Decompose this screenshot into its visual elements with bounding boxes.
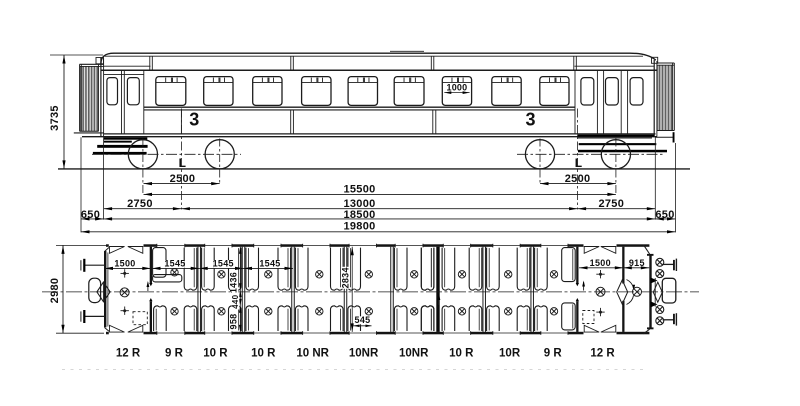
svg-text:10NR: 10NR [349,348,379,360]
svg-text:1545: 1545 [164,259,185,269]
svg-text:12 R: 12 R [590,348,615,360]
svg-text:1500: 1500 [590,258,611,268]
svg-text:L: L [575,156,582,170]
svg-text:1545: 1545 [213,259,234,269]
svg-text:15500: 15500 [343,184,375,196]
svg-text:3: 3 [525,110,535,130]
svg-text:3: 3 [189,110,199,130]
svg-text:10R: 10R [499,348,521,360]
svg-text:19800: 19800 [343,220,375,232]
svg-text:1500: 1500 [114,259,135,269]
svg-text:440: 440 [231,294,240,308]
svg-text:545: 545 [355,315,371,325]
svg-text:10 R: 10 R [251,348,276,360]
svg-text:2750: 2750 [127,198,153,210]
svg-text:10 R: 10 R [449,348,474,360]
svg-text:9 R: 9 R [544,348,563,360]
svg-text:2980: 2980 [49,278,61,304]
svg-text:3735: 3735 [49,105,61,131]
svg-text:L: L [179,156,186,170]
svg-text:12 R: 12 R [116,348,141,360]
svg-text:958: 958 [229,314,239,330]
svg-text:9 R: 9 R [165,348,184,360]
svg-text:1545: 1545 [259,259,280,269]
svg-text:1000: 1000 [446,83,467,93]
svg-text:10 R: 10 R [203,348,228,360]
svg-text:10 NR: 10 NR [296,348,329,360]
svg-text:1436: 1436 [229,272,239,293]
svg-text:2750: 2750 [598,198,624,210]
svg-text:2834: 2834 [340,267,350,288]
svg-text:10NR: 10NR [399,348,429,360]
